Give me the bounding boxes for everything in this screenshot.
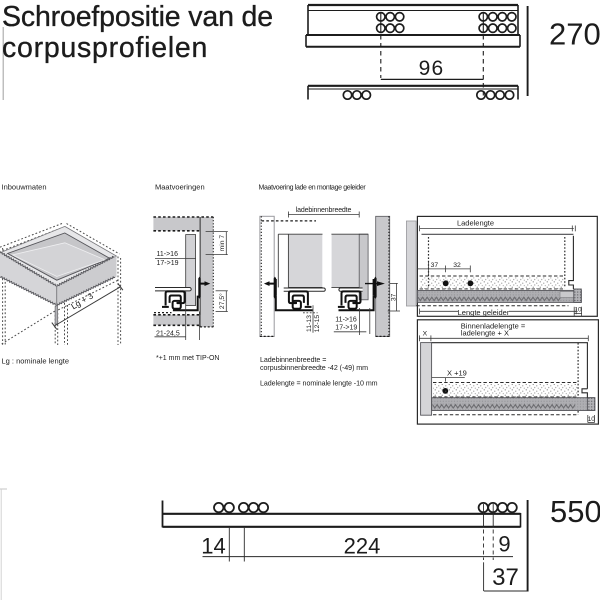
svg-text:Schroefpositie van de: Schroefpositie van de bbox=[2, 1, 273, 33]
svg-text:Ladelengte = nominale lengte -: Ladelengte = nominale lengte -10 mm bbox=[260, 380, 378, 388]
svg-text:37: 37 bbox=[431, 262, 439, 269]
svg-text:Maatvoering lade en montage ge: Maatvoering lade en montage geleider bbox=[259, 185, 367, 192]
svg-text:12-15: 12-15 bbox=[314, 315, 321, 333]
svg-text:min 7: min 7 bbox=[219, 235, 226, 252]
svg-text:37: 37 bbox=[492, 564, 519, 591]
svg-text:Lg : nominale lengte: Lg : nominale lengte bbox=[2, 357, 70, 366]
svg-text:ladebinnenbreedte: ladebinnenbreedte bbox=[296, 207, 352, 214]
svg-text:X: X bbox=[423, 331, 428, 338]
svg-text:17->19: 17->19 bbox=[157, 260, 179, 267]
svg-text:27,5°: 27,5° bbox=[218, 293, 226, 309]
svg-text:17->19: 17->19 bbox=[335, 324, 357, 331]
svg-text:Lengte geleider: Lengte geleider bbox=[458, 308, 510, 317]
svg-text:32: 32 bbox=[453, 262, 461, 269]
svg-text:10: 10 bbox=[574, 307, 582, 314]
svg-text:X +19: X +19 bbox=[447, 368, 467, 377]
svg-text:14: 14 bbox=[201, 533, 225, 558]
svg-text:11-13: 11-13 bbox=[306, 315, 313, 332]
svg-text:550: 550 bbox=[550, 494, 600, 529]
svg-text:37: 37 bbox=[391, 293, 398, 301]
svg-text:21-24,5: 21-24,5 bbox=[156, 330, 180, 337]
svg-text:11->16: 11->16 bbox=[157, 251, 179, 258]
svg-text:Ladebinnenbreedte =: Ladebinnenbreedte = bbox=[260, 356, 326, 364]
svg-text:Maatvoeringen: Maatvoeringen bbox=[155, 183, 205, 192]
svg-text:ladelengte + X: ladelengte + X bbox=[461, 329, 509, 338]
svg-text:224: 224 bbox=[344, 533, 381, 558]
svg-text:Inbouwmaten: Inbouwmaten bbox=[2, 183, 47, 192]
svg-text:9: 9 bbox=[498, 532, 510, 557]
svg-text:corpusbinnenbreedte -42 (-49): corpusbinnenbreedte -42 (-49) mm bbox=[260, 364, 368, 372]
svg-text:Ladelengte: Ladelengte bbox=[457, 219, 494, 228]
svg-text:corpusprofielen: corpusprofielen bbox=[2, 32, 208, 64]
svg-text:270: 270 bbox=[549, 17, 600, 52]
svg-text:96: 96 bbox=[419, 57, 445, 80]
svg-text:11->16: 11->16 bbox=[335, 316, 357, 323]
svg-text:*+1 mm met TIP-ON: *+1 mm met TIP-ON bbox=[156, 355, 219, 362]
